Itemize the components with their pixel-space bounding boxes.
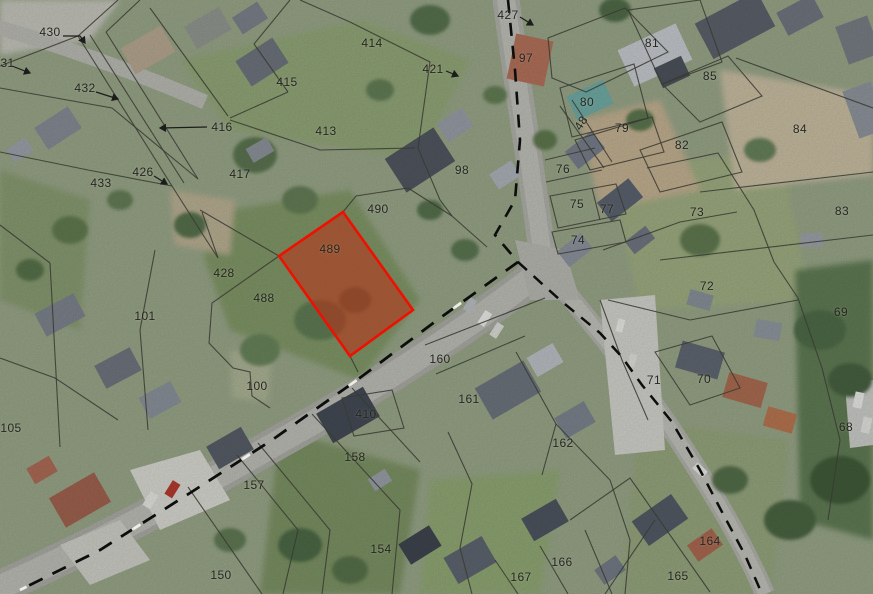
cadastral-map[interactable]: 4304314324334264164174154134144214279798… (0, 0, 873, 594)
noise-overlay (0, 0, 873, 594)
aerial-imagery-base (0, 0, 873, 594)
